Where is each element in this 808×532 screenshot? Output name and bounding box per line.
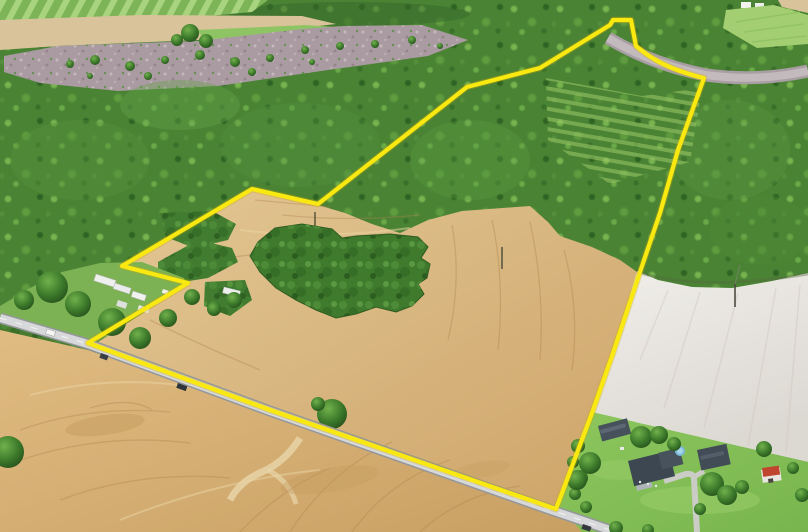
building-top-right-1 bbox=[741, 2, 751, 8]
forest-light-patch-6 bbox=[410, 120, 530, 200]
aerial-photo bbox=[0, 0, 808, 532]
cleared-tree-14 bbox=[309, 59, 315, 65]
boundary-bush-4 bbox=[569, 488, 581, 500]
tree-clump-strip-1 bbox=[181, 24, 199, 42]
cleared-tree-6 bbox=[230, 57, 240, 67]
lawn-tree-9 bbox=[756, 441, 772, 457]
homestead-tree-7 bbox=[207, 302, 221, 316]
lawn-tree-2 bbox=[650, 426, 668, 444]
lawn-tree-1 bbox=[630, 426, 652, 448]
house-window-3 bbox=[655, 485, 657, 487]
lawn-tree-8 bbox=[735, 480, 749, 494]
forest-light-patch-3 bbox=[120, 80, 240, 130]
cleared-tree-11 bbox=[144, 72, 152, 80]
forest-light-patch-1 bbox=[10, 120, 150, 200]
homestead-tree-4 bbox=[129, 327, 151, 349]
cleared-tree-15 bbox=[408, 36, 416, 44]
homestead-tree-8 bbox=[226, 292, 242, 308]
homestead-tree-1 bbox=[36, 271, 68, 303]
lawn-tree-13 bbox=[787, 462, 799, 474]
lawn-white-speck-2 bbox=[620, 447, 624, 450]
scene-svg bbox=[0, 0, 808, 532]
roadside-tree-small bbox=[311, 397, 325, 411]
cleared-tree-12 bbox=[248, 68, 256, 76]
homestead-tree-5 bbox=[159, 309, 177, 327]
cleared-tree-9 bbox=[336, 42, 344, 50]
red-shed-door bbox=[768, 478, 774, 483]
lawn-tree-7 bbox=[717, 485, 737, 505]
cleared-tree-8 bbox=[301, 46, 309, 54]
cleared-tree-3 bbox=[125, 61, 135, 71]
tree-clump-strip-2 bbox=[199, 34, 213, 48]
homestead-tree-2 bbox=[65, 291, 91, 317]
house-window-2 bbox=[647, 483, 649, 485]
cleared-tree-16 bbox=[437, 43, 443, 49]
cleared-tree-7 bbox=[266, 54, 274, 62]
cleared-tree-4 bbox=[161, 56, 169, 64]
cleared-tree-5 bbox=[195, 50, 205, 60]
cleared-tree-2 bbox=[90, 55, 100, 65]
lawn-tree-4 bbox=[579, 452, 601, 474]
homestead-tree-6 bbox=[184, 289, 200, 305]
homestead-tree-9 bbox=[14, 290, 34, 310]
lawn-tree-10 bbox=[694, 503, 706, 515]
cleared-tree-13 bbox=[87, 73, 93, 79]
cleared-tree-10 bbox=[371, 40, 379, 48]
house-window-1 bbox=[639, 481, 641, 483]
forest-light-patch-5 bbox=[710, 195, 808, 265]
lawn-tree-3 bbox=[667, 437, 681, 451]
tree-clump-strip-3 bbox=[171, 34, 183, 46]
boundary-bush-5 bbox=[580, 501, 592, 513]
green-field-top-right bbox=[723, 5, 808, 48]
cleared-tree-1 bbox=[66, 60, 74, 68]
